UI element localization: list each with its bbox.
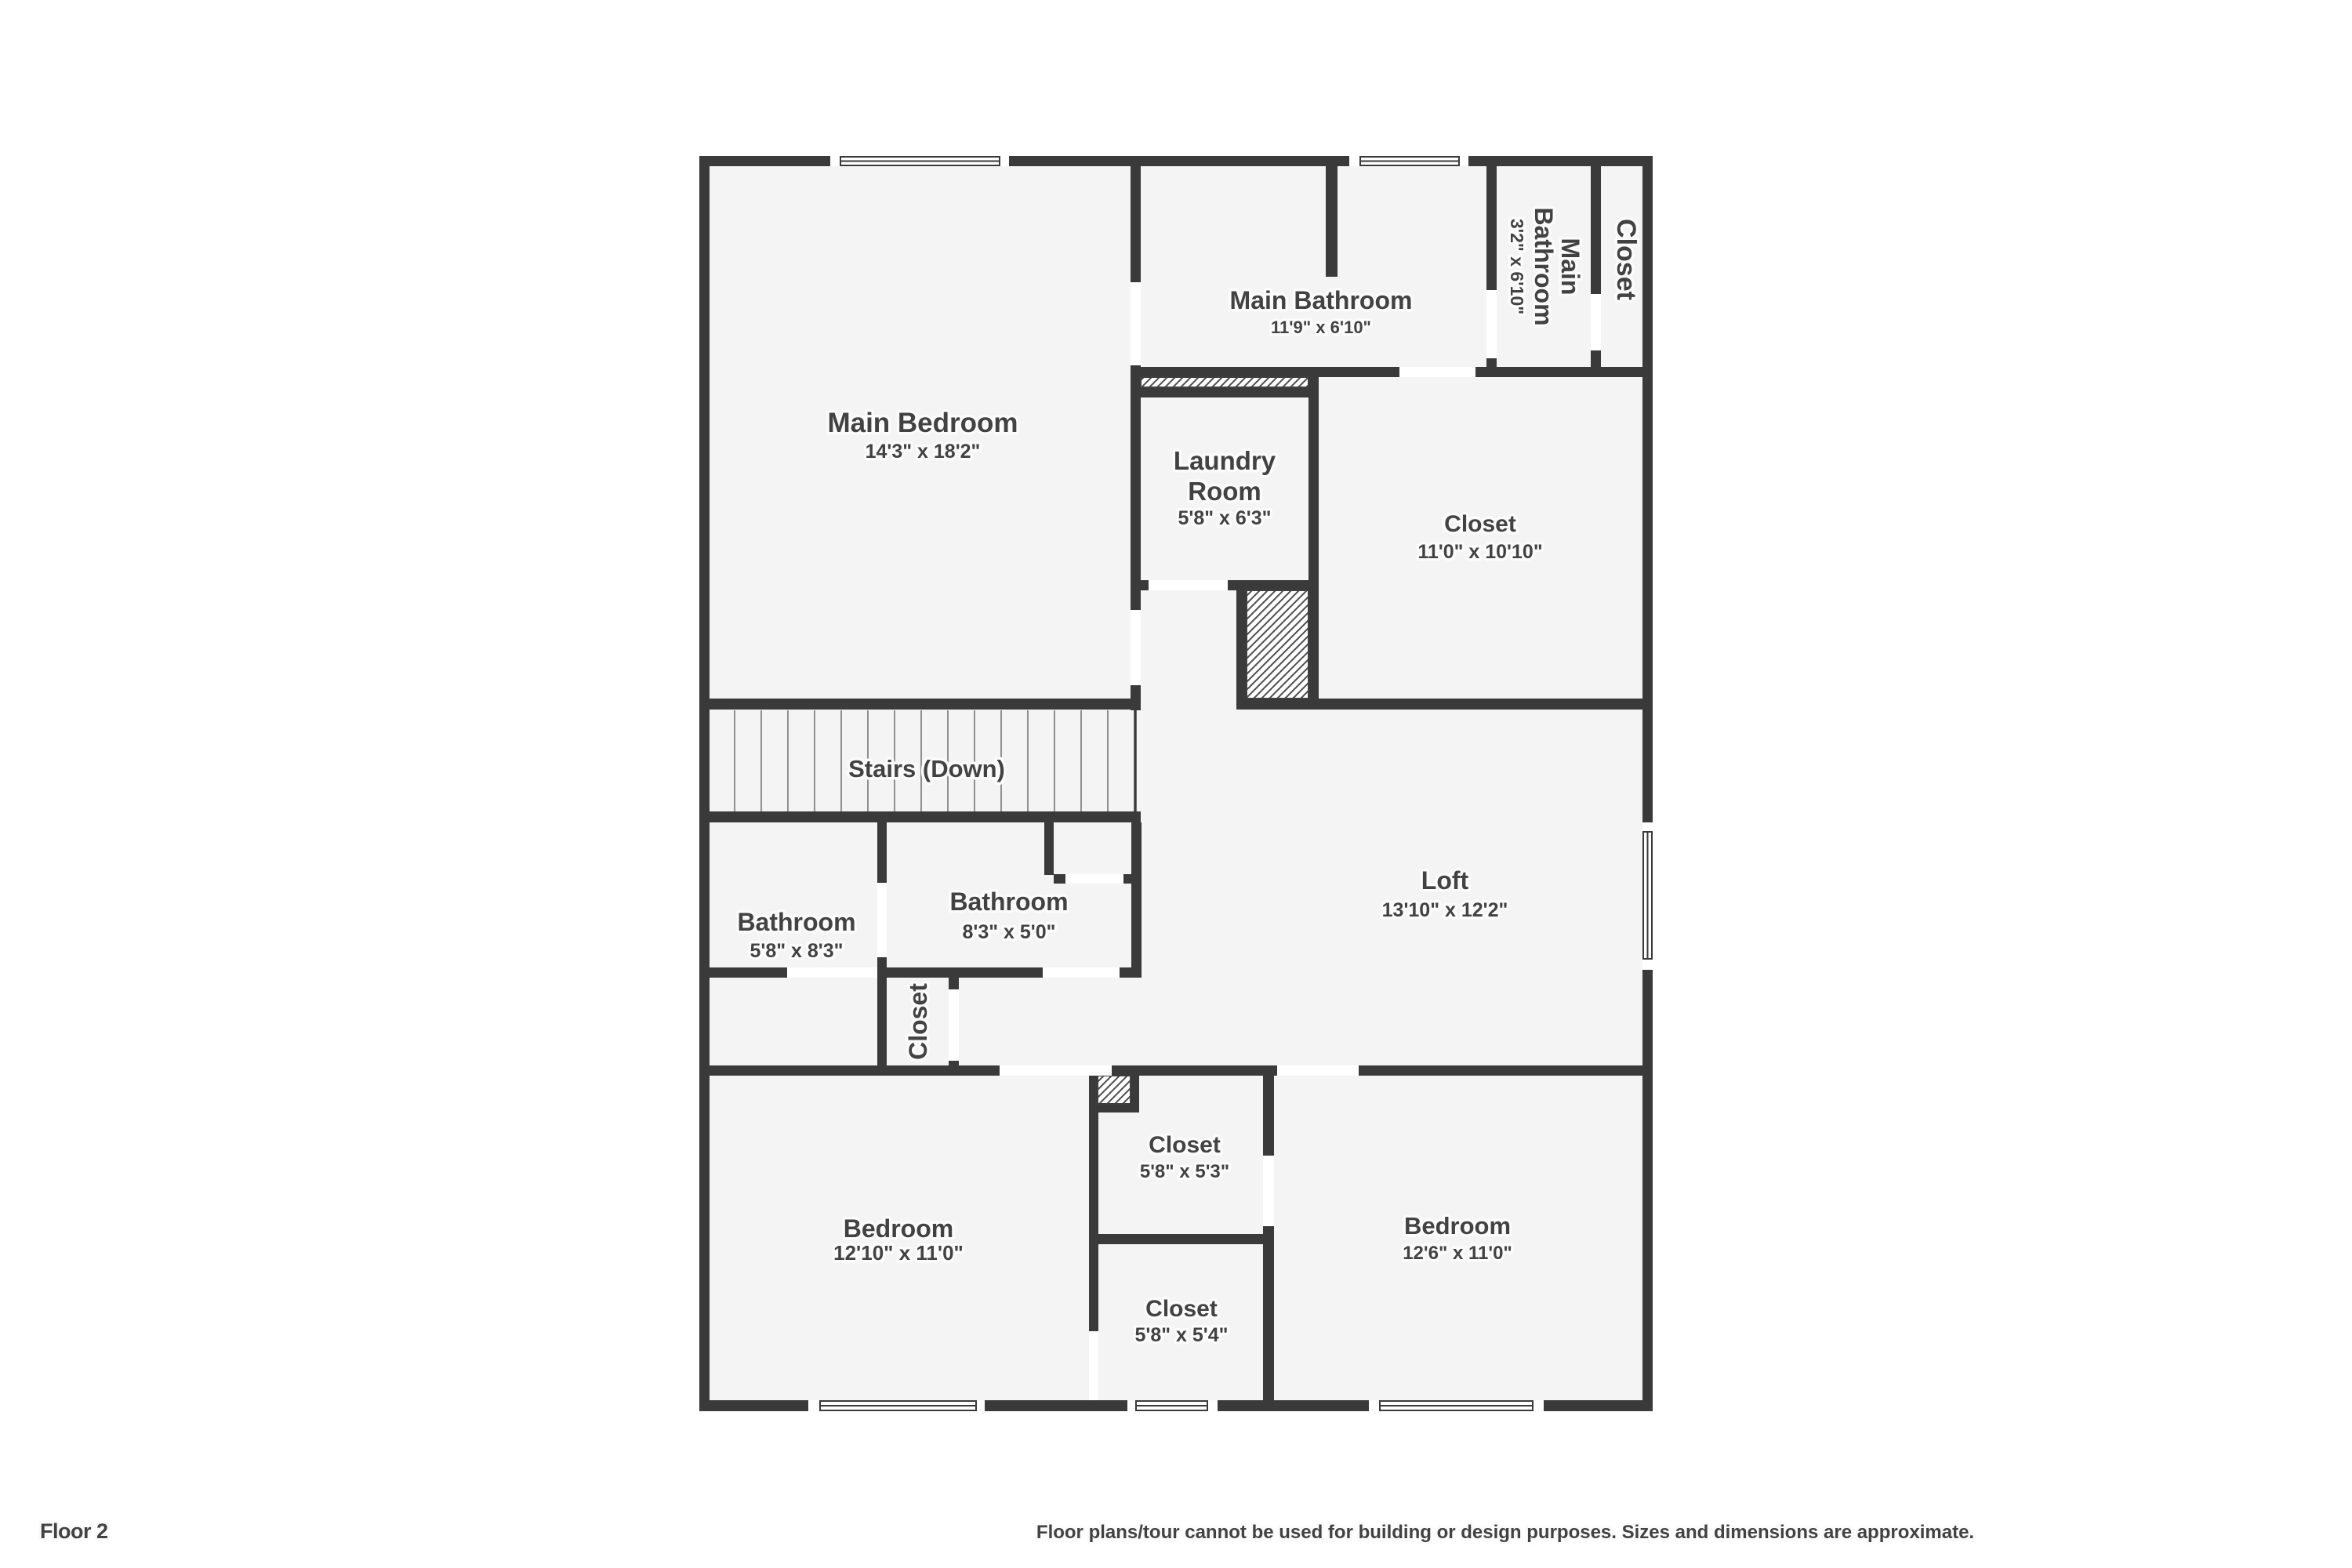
svg-text:Closet: Closet [1149,1132,1221,1158]
svg-text:Closet: Closet [904,983,932,1060]
svg-text:Floor plans/tour cannot be use: Floor plans/tour cannot be used for buil… [1036,1522,1974,1543]
svg-text:5'8" x 8'3": 5'8" x 8'3" [750,940,843,962]
svg-text:Bedroom: Bedroom [844,1214,953,1243]
svg-text:Main: Main [1556,238,1584,296]
svg-text:Closet: Closet [1145,1296,1218,1322]
svg-text:Bathroom: Bathroom [949,887,1068,916]
svg-text:5'8" x 5'4": 5'8" x 5'4" [1134,1324,1228,1346]
svg-text:8'3" x 5'0": 8'3" x 5'0" [962,921,1055,943]
svg-text:12'10" x 11'0": 12'10" x 11'0" [833,1241,964,1265]
svg-text:Closet: Closet [1611,219,1641,300]
svg-text:Floor 2: Floor 2 [40,1519,108,1543]
svg-text:Loft: Loft [1421,866,1469,895]
svg-text:13'10" x 12'2": 13'10" x 12'2" [1382,899,1508,921]
svg-text:3'2" x 6'10": 3'2" x 6'10" [1507,219,1527,314]
svg-text:11'0" x 10'10": 11'0" x 10'10" [1417,541,1542,563]
svg-text:5'8" x 5'3": 5'8" x 5'3" [1140,1161,1229,1182]
svg-text:Stairs (Down): Stairs (Down) [848,755,1005,782]
svg-text:Closet: Closet [1444,511,1516,537]
svg-text:Bathroom: Bathroom [1530,207,1558,325]
svg-text:11'9" x 6'10": 11'9" x 6'10" [1271,318,1371,337]
svg-text:Bathroom: Bathroom [737,908,855,936]
svg-text:14'3" x 18'2": 14'3" x 18'2" [866,441,981,463]
svg-text:12'6" x 11'0": 12'6" x 11'0" [1403,1243,1512,1264]
svg-text:Main Bedroom: Main Bedroom [827,408,1018,438]
svg-text:5'8" x 6'3": 5'8" x 6'3" [1178,507,1271,529]
svg-text:Room: Room [1188,477,1261,506]
svg-text:Laundry: Laundry [1174,446,1276,475]
svg-text:Main Bathroom: Main Bathroom [1230,286,1413,314]
svg-text:Bedroom: Bedroom [1404,1212,1511,1240]
